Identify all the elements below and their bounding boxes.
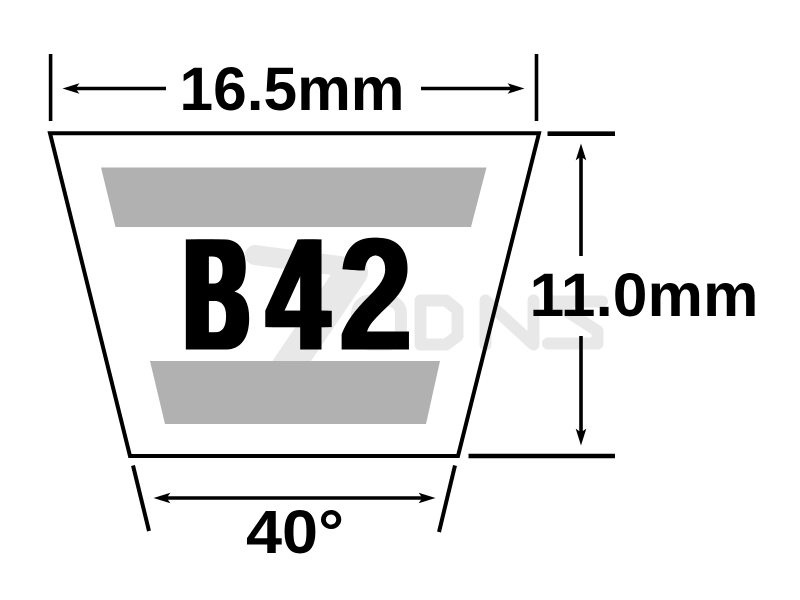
svg-text:4: 4 bbox=[270, 206, 332, 385]
svg-text:B: B bbox=[191, 206, 253, 384]
svg-text:40°: 40° bbox=[246, 498, 344, 566]
svg-text:2: 2 bbox=[341, 206, 414, 384]
svg-text:16.5mm: 16.5mm bbox=[180, 55, 405, 123]
svg-text:11.0mm: 11.0mm bbox=[530, 261, 759, 329]
